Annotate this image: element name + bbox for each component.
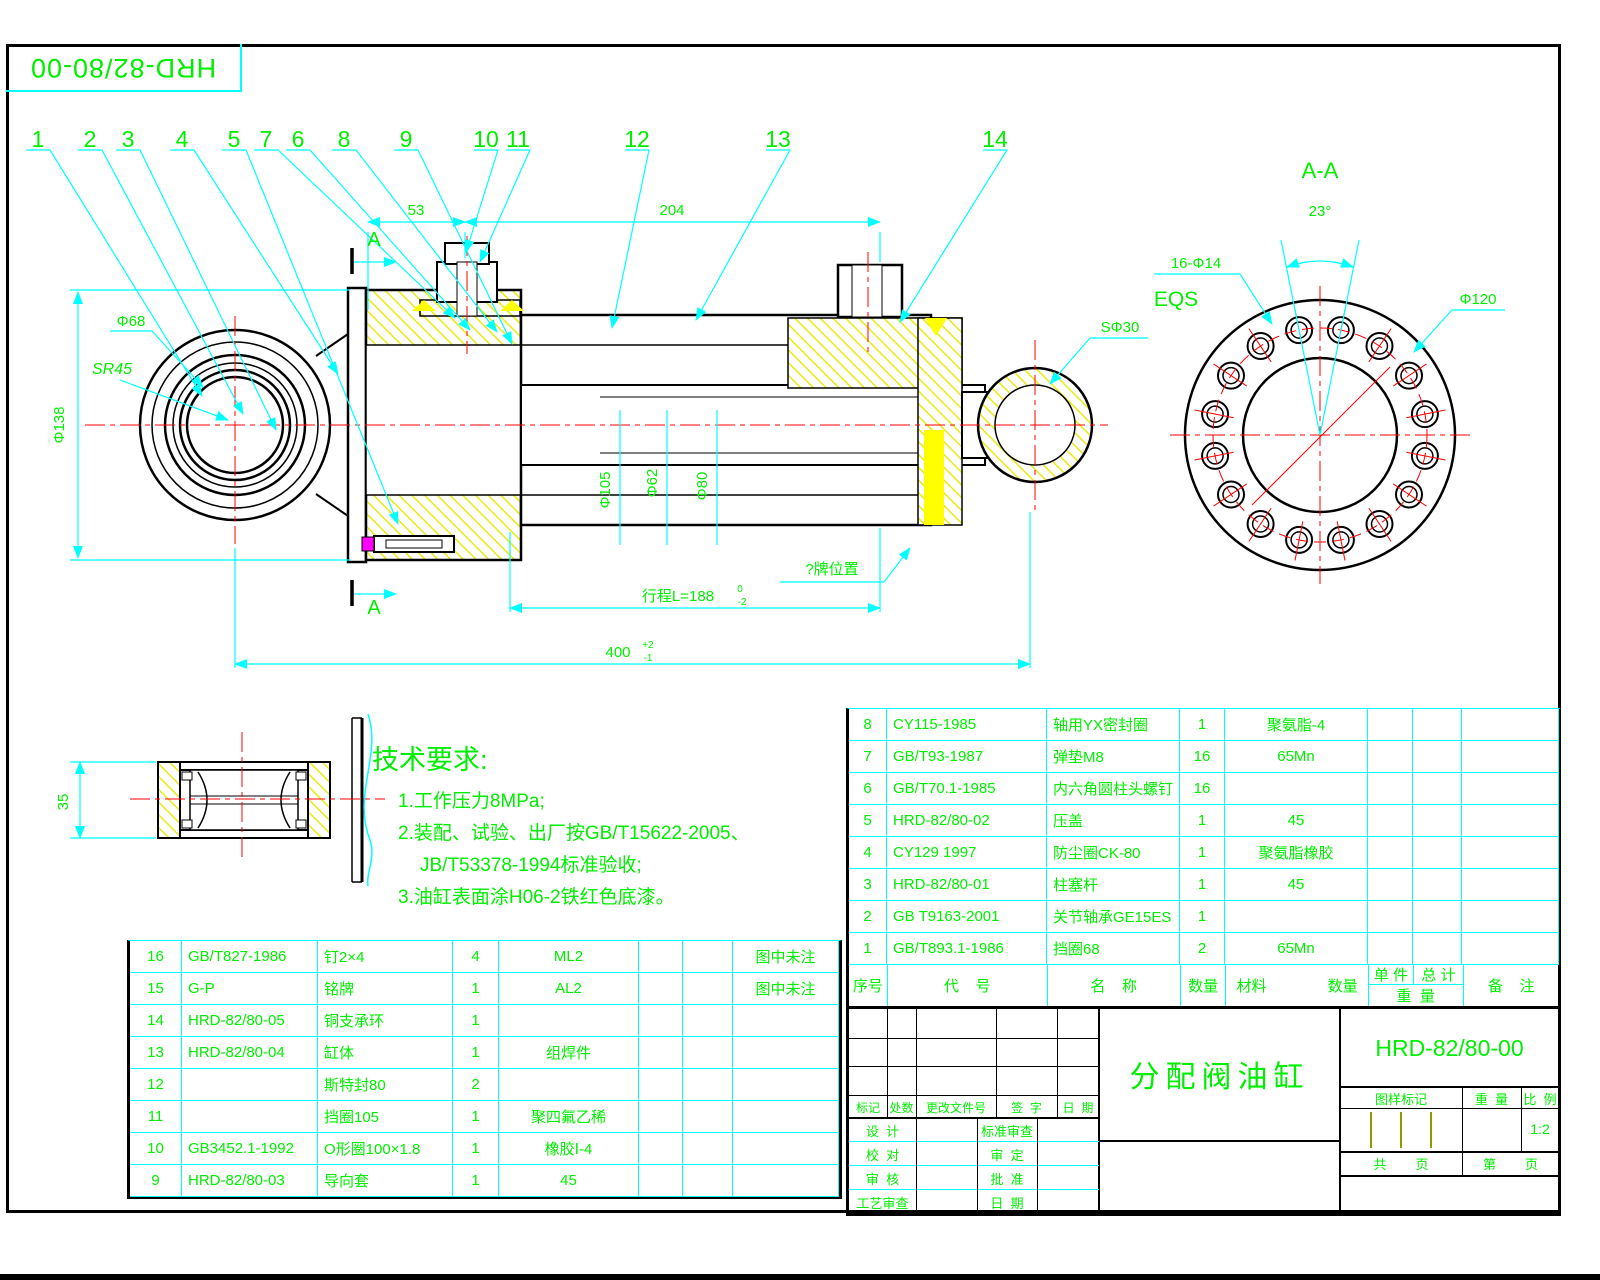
bom-cell-remark: [733, 1101, 839, 1133]
bom-cell-qty: 16: [1180, 773, 1225, 805]
bom-table-left: 16GB/T827-1986钉2×44ML2图中未注 15G-P铭牌1AL2图中…: [127, 940, 842, 1199]
dim-phi138: Φ138: [51, 407, 68, 444]
bom-cell-qty: 1: [1180, 709, 1225, 741]
bom-cell-remark: [733, 1133, 839, 1165]
dim-400: 400: [605, 644, 630, 661]
section-aa-title: A-A: [1302, 158, 1339, 183]
grease-nipple: [362, 537, 374, 551]
bom-header-material: 材料: [1236, 975, 1266, 996]
bom-cell-no: 15: [130, 973, 182, 1005]
callout-3: 3: [122, 126, 135, 152]
bom-cell-empty: [1368, 709, 1413, 741]
bom-cell-code: GB T9163-2001: [887, 901, 1047, 933]
sig-ratify: 批 准: [977, 1169, 1037, 1187]
sig-date: 日 期: [977, 1193, 1037, 1211]
bom-cell-no: 2: [849, 901, 887, 933]
bom-cell-no: 5: [849, 805, 887, 837]
bom-cell-no: 1: [849, 933, 887, 965]
bom-header-total: 总 计: [1414, 964, 1462, 985]
bom-cell-empty: [1462, 869, 1559, 901]
bearing-section-view: [158, 714, 372, 886]
callout-1: 1: [32, 126, 45, 152]
bom-cell-empty: [1462, 741, 1559, 773]
section-aa-angle: 23°: [1309, 203, 1332, 220]
bom-cell-material: 65Mn: [1225, 741, 1368, 773]
weight-label: 重 量: [1462, 1088, 1521, 1108]
bom-cell-qty: 4: [453, 941, 499, 973]
bom-cell-remark: [733, 1165, 839, 1197]
dim-sr45: SR45: [92, 361, 132, 378]
callout-10: 10: [473, 126, 499, 152]
grid-line: [1099, 1140, 1340, 1142]
bom-cell-empty: [639, 941, 683, 973]
bom-cell-empty: [1413, 933, 1462, 965]
bom-cell-remark: [733, 1005, 839, 1037]
bom-cell-empty: [683, 1005, 733, 1037]
tech-req-line-3: JB/T53378-1994标准验收;: [420, 850, 642, 877]
bom-cell-material: 65Mn: [1225, 933, 1368, 965]
bom-cell-empty: [639, 1005, 683, 1037]
bom-header-qty: 数量: [1181, 964, 1227, 1006]
callout-4: 4: [176, 126, 189, 152]
grid-line: [1340, 1175, 1559, 1177]
bom-cell-remark: 图中未注: [733, 941, 839, 973]
dim-phi62: Φ62: [644, 469, 661, 498]
dim-phi105: Φ105: [597, 472, 614, 509]
bom-cell-no: 3: [849, 869, 887, 901]
bom-cell-code: [182, 1101, 318, 1133]
bom-cell-empty: [683, 1069, 733, 1101]
grid-line: [1037, 1119, 1038, 1213]
bom-cell-empty: [1413, 869, 1462, 901]
bom-cell-name: 关节轴承GE15ES: [1047, 901, 1180, 933]
bom-cell-name: 铜支承环: [318, 1005, 453, 1037]
bom-cell-empty: [1368, 869, 1413, 901]
cad-drawing-sheet: { "sheet": { "doc_number_box": "HRD-82/8…: [0, 0, 1600, 1280]
bom-cell-name: 弹垫M8: [1047, 741, 1180, 773]
bom-cell-empty: [639, 1037, 683, 1069]
bom-cell-name: 铭牌: [318, 973, 453, 1005]
section-aa-eqs: EQS: [1154, 288, 1198, 311]
bom-cell-qty: 1: [1180, 805, 1225, 837]
bom-cell-code: GB/T827-1986: [182, 941, 318, 973]
bom-cell-code: HRD-82/80-05: [182, 1005, 318, 1037]
bom-cell-code: CY129 1997: [887, 837, 1047, 869]
bom-cell-code: GB/T893.1-1986: [887, 933, 1047, 965]
dim-400-tol-bottom: -1: [644, 653, 653, 664]
tech-req-line-1: 1.工作压力8MPa;: [398, 786, 545, 813]
bom-header-no: 序号: [849, 964, 888, 1006]
bom-cell-qty: 1: [453, 1165, 499, 1197]
grid-line: [849, 1117, 1099, 1119]
bom-cell-code: CY115-1985: [887, 709, 1047, 741]
section-aa-phi120: Φ120: [1460, 291, 1497, 308]
bom-cell-qty: 16: [1180, 741, 1225, 773]
bom-cell-material: 组焊件: [499, 1037, 639, 1069]
callout-12: 12: [624, 126, 650, 152]
bom-cell-name: 轴用YX密封圈: [1047, 709, 1180, 741]
dim-stroke-tol-bottom: -2: [738, 597, 747, 608]
bom-cell-qty: 1: [1180, 901, 1225, 933]
bom-cell-empty: [683, 973, 733, 1005]
bom-cell-empty: [683, 1037, 733, 1069]
dim-stroke: 行程L=188: [642, 588, 714, 605]
section-aa-holes: 16-Φ14: [1171, 255, 1221, 272]
dim-sphi30: SΦ30: [1101, 319, 1140, 336]
dim-35: 35: [55, 794, 72, 811]
bom-cell-code: G-P: [182, 973, 318, 1005]
rev-sign-label: 签 字: [996, 1097, 1057, 1117]
bom-cell-name: 导向套: [318, 1165, 453, 1197]
bom-cell-name: 挡圈68: [1047, 933, 1180, 965]
bom-cell-name: 缸体: [318, 1037, 453, 1069]
sig-design: 设 计: [849, 1121, 916, 1139]
bom-cell-empty: [639, 1069, 683, 1101]
mark-label: 图样标记: [1340, 1088, 1462, 1108]
dim-phi80: Φ80: [694, 472, 711, 501]
bom-cell-empty: [1413, 773, 1462, 805]
rev-count-label: 处数: [887, 1097, 916, 1117]
bom-cell-no: 16: [130, 941, 182, 973]
mark-tick: [1430, 1112, 1432, 1148]
bom-cell-qty: 1: [453, 1005, 499, 1037]
callout-6: 6: [292, 126, 305, 152]
bom-cell-no: 4: [849, 837, 887, 869]
bom-cell-empty: [683, 1165, 733, 1197]
bom-cell-remark: [733, 1037, 839, 1069]
bom-cell-empty: [1462, 837, 1559, 869]
bom-cell-empty: [1462, 933, 1559, 965]
scale-value: 1:2: [1521, 1119, 1559, 1139]
bom-cell-no: 11: [130, 1101, 182, 1133]
tech-req-line-4: 3.油缸表面涂H06-2铁红色底漆。: [398, 882, 675, 909]
bom-cell-material: [1225, 901, 1368, 933]
callout-11: 11: [506, 126, 530, 152]
bom-cell-empty: [639, 1101, 683, 1133]
sig-process: 工艺审查: [849, 1193, 916, 1211]
bom-header-row: 序号 代 号 名 称 数量 材料 数量 单 件 总 计 重 量 备 注: [846, 964, 1561, 1006]
bom-cell-qty: 1: [1180, 869, 1225, 901]
bom-cell-no: 7: [849, 741, 887, 773]
sig-review: 审 核: [849, 1169, 916, 1187]
bom-cell-code: HRD-82/80-02: [887, 805, 1047, 837]
bom-cell-empty: [1462, 709, 1559, 741]
bom-cell-name: 斯特封80: [318, 1069, 453, 1101]
bom-cell-remark: 图中未注: [733, 973, 839, 1005]
bom-cell-name: 内六角圆柱头螺钉: [1047, 773, 1180, 805]
dim-53: 53: [408, 202, 425, 219]
tech-req-line-2: 2.装配、试验、出厂按GB/T15622-2005、: [398, 818, 750, 845]
mark-tick: [1370, 1112, 1372, 1148]
grid-line: [1340, 1108, 1559, 1109]
bom-cell-name: 防尘圈CK-80: [1047, 837, 1180, 869]
bom-cell-code: [182, 1069, 318, 1101]
bom-cell-qty: 1: [453, 973, 499, 1005]
bom-header-weight: 重 量: [1369, 985, 1463, 1006]
rev-docno-label: 更改文件号: [916, 1097, 996, 1117]
bom-cell-material: [1225, 773, 1368, 805]
bom-cell-empty: [639, 1165, 683, 1197]
bom-cell-empty: [1368, 741, 1413, 773]
callout-5: 5: [228, 126, 241, 152]
bom-cell-empty: [1462, 773, 1559, 805]
bom-header-weight-group: 单 件 总 计 重 量: [1369, 964, 1464, 1006]
bom-cell-code: GB/T70.1-1985: [887, 773, 1047, 805]
bom-header-name: 名 称: [1048, 964, 1181, 1006]
scale-label: 比 例: [1521, 1088, 1559, 1108]
grid-line: [849, 1189, 1099, 1190]
bom-cell-material: 45: [1225, 869, 1368, 901]
bom-cell-material: [499, 1005, 639, 1037]
bom-header-remark: 备 注: [1464, 964, 1559, 1006]
callout-2: 2: [84, 126, 97, 152]
bom-cell-no: 8: [849, 709, 887, 741]
bom-header-material-qty: 材料 数量: [1226, 964, 1368, 1006]
seal-band-yellow: [924, 430, 944, 525]
bom-header-code: 代 号: [888, 964, 1048, 1006]
bom-cell-name: 挡圈105: [318, 1101, 453, 1133]
bom-cell-material: 聚氨脂-4: [1225, 709, 1368, 741]
bom-cell-empty: [683, 1133, 733, 1165]
rev-date-label: 日 期: [1057, 1097, 1099, 1117]
bom-cell-empty: [639, 973, 683, 1005]
pages-total: 共 页: [1340, 1153, 1462, 1173]
bom-cell-name: 钉2×4: [318, 941, 453, 973]
callout-7: 7: [260, 126, 273, 152]
bom-cell-no: 9: [130, 1165, 182, 1197]
bom-cell-material: 橡胶Ⅰ-4: [499, 1133, 639, 1165]
bom-cell-empty: [1368, 773, 1413, 805]
sig-approve-check: 审 定: [977, 1145, 1037, 1163]
bom-cell-empty: [639, 1133, 683, 1165]
bom-cell-material: 聚四氟乙稀: [499, 1101, 639, 1133]
bom-cell-empty: [1368, 933, 1413, 965]
bom-cell-name: 压盖: [1047, 805, 1180, 837]
nameplate-note: ?牌位置: [805, 561, 858, 578]
dim-stroke-tol-top: 0: [737, 584, 743, 595]
break-line: [364, 714, 372, 886]
callout-13: 13: [765, 126, 791, 152]
bom-cell-empty: [1368, 837, 1413, 869]
bom-cell-qty: 1: [453, 1101, 499, 1133]
sig-std-check: 标准审查: [977, 1121, 1037, 1139]
grid-line: [849, 1165, 1099, 1166]
bom-cell-material: 45: [1225, 805, 1368, 837]
callout-8: 8: [338, 126, 351, 152]
bom-header-qty2: 数量: [1328, 975, 1358, 996]
section-a-top: A: [367, 229, 381, 251]
bom-cell-no: 12: [130, 1069, 182, 1101]
bom-cell-empty: [1413, 741, 1462, 773]
bom-table-right: 8CY115-1985轴用YX密封圈1聚氨脂-4 7GB/T93-1987弹垫M…: [846, 708, 1561, 965]
bom-cell-empty: [1462, 805, 1559, 837]
bom-cell-name: O形圈100×1.8: [318, 1133, 453, 1165]
bom-cell-no: 14: [130, 1005, 182, 1037]
bom-cell-material: AL2: [499, 973, 639, 1005]
bom-cell-code: GB3452.1-1992: [182, 1133, 318, 1165]
dim-204: 204: [659, 202, 684, 219]
bom-cell-empty: [1413, 901, 1462, 933]
callout-14: 14: [982, 126, 1008, 152]
product-name: 分配阀油缸: [1099, 1054, 1340, 1094]
grid-line: [849, 1141, 1099, 1142]
bom-cell-code: HRD-82/80-03: [182, 1165, 318, 1197]
grid-line: [916, 1119, 917, 1213]
bom-cell-empty: [1413, 837, 1462, 869]
bom-cell-code: HRD-82/80-01: [887, 869, 1047, 901]
dim-400-tol-top: +2: [642, 640, 654, 651]
sig-proof: 校 对: [849, 1145, 916, 1163]
bom-cell-material: 45: [499, 1165, 639, 1197]
bom-cell-qty: 1: [453, 1037, 499, 1069]
bom-cell-empty: [683, 941, 733, 973]
section-a-bottom: A: [367, 597, 381, 619]
bom-cell-no: 13: [130, 1037, 182, 1069]
bom-cell-qty: 1: [453, 1133, 499, 1165]
bom-cell-code: GB/T93-1987: [887, 741, 1047, 773]
bom-cell-material: ML2: [499, 941, 639, 973]
bom-cell-empty: [1413, 805, 1462, 837]
mark-tick: [1400, 1112, 1402, 1148]
main-assembly-view: [140, 243, 1092, 562]
bom-cell-no: 10: [130, 1133, 182, 1165]
bom-cell-code: HRD-82/80-04: [182, 1037, 318, 1069]
bom-header-unit: 单 件: [1369, 964, 1415, 985]
tech-req-title: 技术要求:: [372, 738, 488, 777]
bom-cell-empty: [683, 1101, 733, 1133]
bom-cell-name: 柱塞杆: [1047, 869, 1180, 901]
bom-cell-material: 聚氨脂橡胶: [1225, 837, 1368, 869]
bom-cell-empty: [1413, 709, 1462, 741]
bom-cell-empty: [1368, 901, 1413, 933]
bom-cell-material: [499, 1069, 639, 1101]
bom-cell-qty: 2: [1180, 933, 1225, 965]
pages-no: 第 页: [1462, 1153, 1559, 1173]
rev-mark-label: 标记: [849, 1097, 887, 1117]
dim-phi68: Φ68: [117, 313, 146, 330]
bom-cell-remark: [733, 1069, 839, 1101]
callout-9: 9: [400, 126, 413, 152]
bom-cell-empty: [1368, 805, 1413, 837]
bom-cell-empty: [1462, 901, 1559, 933]
drawing-number: HRD-82/80-00: [1340, 1033, 1559, 1063]
bom-cell-no: 6: [849, 773, 887, 805]
bom-cell-qty: 1: [1180, 837, 1225, 869]
title-block: 标记 处数 更改文件号 签 字 日 期 设 计 标准审查 校 对 审 定 审 核…: [846, 1006, 1561, 1216]
bom-cell-qty: 2: [453, 1069, 499, 1101]
